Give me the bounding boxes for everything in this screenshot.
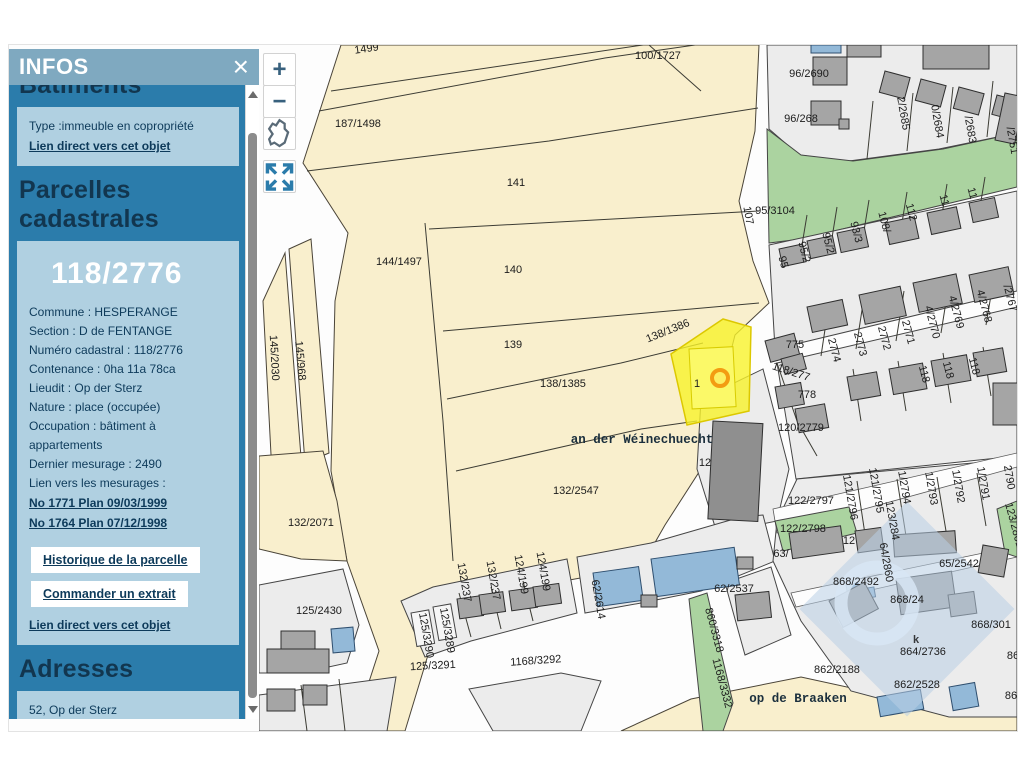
parcel-label: 12	[699, 457, 711, 469]
field-commune: Commune : HESPERANGE	[29, 303, 227, 322]
scroll-down-icon[interactable]	[248, 706, 258, 713]
geoportal-app: k 1499187/1498100/1727141144/14971401391…	[8, 44, 1018, 732]
scrollbar-thumb[interactable]	[248, 133, 257, 698]
parcel-label: 862/2188	[814, 664, 860, 676]
parcel-label: 100/1727	[635, 50, 681, 62]
parcel-label: 132/2547	[553, 485, 599, 497]
section-heading-parcelles: Parcelles cadastrales	[19, 176, 237, 234]
panel-title: INFOS	[19, 54, 89, 80]
parcel-label: 139	[504, 339, 522, 351]
parcel-label: 86	[1007, 650, 1017, 662]
field-lieudit: Lieudit : Op der Sterz	[29, 379, 227, 398]
parcel-label: 778	[798, 389, 816, 401]
map-area[interactable]: k 1499187/1498100/1727141144/14971401391…	[259, 45, 1017, 731]
parcel-label: 187/1498	[335, 118, 381, 130]
field-occupation: Occupation : bâtiment à appartements	[29, 417, 227, 455]
parcel-number: 118/2776	[29, 251, 227, 303]
adresse-box: 52, Op der Sterz L-5823 Fentange Lien di…	[17, 691, 239, 719]
building-type: Type :immeuble en copropriété	[29, 117, 227, 136]
parcel-label: 12	[843, 535, 855, 547]
parcel-label: 144/1497	[376, 256, 422, 268]
parcel-label: 95/3104	[755, 205, 795, 217]
field-dernier-mesurage: Dernier mesurage : 2490	[29, 455, 227, 474]
panel-scrollbar[interactable]	[245, 85, 259, 719]
mesurage-link-1764[interactable]: No 1764 Plan 07/12/1998	[29, 513, 167, 533]
cadastral-map[interactable]: k 1499187/1498100/1727141144/14971401391…	[259, 45, 1017, 731]
parcel-label: 125/3291	[410, 659, 456, 673]
parcel-label: 65/2542	[939, 558, 979, 570]
panel-body[interactable]: Bâtiments Type :immeuble en copropriété …	[9, 85, 245, 719]
info-panel: INFOS × Bâtiments Type :immeuble en copr…	[9, 49, 259, 719]
section-heading-adresses: Adresses	[19, 655, 237, 684]
screenshot-root: k 1499187/1498100/1727141144/14971401391…	[0, 0, 1024, 768]
parcel-label: 864/2736	[900, 646, 946, 658]
watermark-letter: k	[913, 634, 920, 646]
parcel-label: 862/2528	[894, 679, 940, 691]
parcelle-direct-link[interactable]: Lien direct vers cet objet	[29, 615, 170, 635]
batiments-box: Type :immeuble en copropriété Lien direc…	[17, 107, 239, 166]
expand-arrows-icon	[264, 0, 295, 520]
parcel-label: 122/2798	[780, 523, 826, 535]
parcel-label: 868/2492	[833, 576, 879, 588]
zone-below-street-mid[interactable]	[469, 673, 601, 731]
field-numero-cadastral: Numéro cadastral : 118/2776	[29, 341, 227, 360]
parcel-label: 96/268	[784, 113, 818, 125]
field-section: Section : D de FENTANGE	[29, 322, 227, 341]
parcel-label: 868/301	[971, 619, 1011, 631]
scroll-up-icon[interactable]	[248, 91, 258, 98]
close-icon[interactable]: ×	[233, 54, 249, 80]
parcel-label: 775	[786, 339, 804, 351]
parcel-label: 63/	[773, 548, 789, 560]
street-name-label: op de Braaken	[749, 692, 847, 706]
parcel-label: 125/2430	[296, 605, 342, 617]
parcelle-box: 118/2776 Commune : HESPERANGE Section : …	[17, 241, 239, 645]
field-nature: Nature : place (occupée)	[29, 398, 227, 417]
mesurage-link-1771[interactable]: No 1771 Plan 09/03/1999	[29, 493, 167, 513]
map-controls: + −	[263, 53, 297, 192]
selection-marker-icon	[712, 370, 728, 386]
parcel-label: 96/2690	[789, 68, 829, 80]
section-heading-batiments: Bâtiments	[19, 85, 237, 100]
field-lien-mesurages: Lien vers les mesurages :	[29, 474, 227, 493]
panel-header: INFOS ×	[9, 49, 259, 85]
parcel-label: 141	[507, 177, 525, 189]
address-street: 52, Op der Sterz	[29, 701, 227, 719]
parcel-label: 140	[504, 264, 522, 276]
parcel-label: 1168/3292	[510, 653, 562, 669]
field-contenance: Contenance : 0ha 11a 78ca	[29, 360, 227, 379]
parcel-label: 138/1385	[540, 378, 586, 390]
fullscreen-button[interactable]	[263, 160, 296, 193]
parcel-label: 120/2779	[778, 422, 824, 434]
commander-extrait-button[interactable]: Commander un extrait	[31, 581, 188, 607]
parcel-label: 1	[694, 378, 700, 390]
parcel-label: 86	[1005, 690, 1017, 702]
parcel-label: 122/2797	[788, 495, 834, 507]
historique-button[interactable]: Historique de la parcelle	[31, 547, 200, 573]
parcel-label: 868/24	[890, 594, 924, 606]
street-name-label: an der Wéinechuecht	[571, 433, 714, 447]
building-direct-link[interactable]: Lien direct vers cet objet	[29, 136, 170, 156]
parcel-label: 62/2537	[714, 583, 754, 595]
